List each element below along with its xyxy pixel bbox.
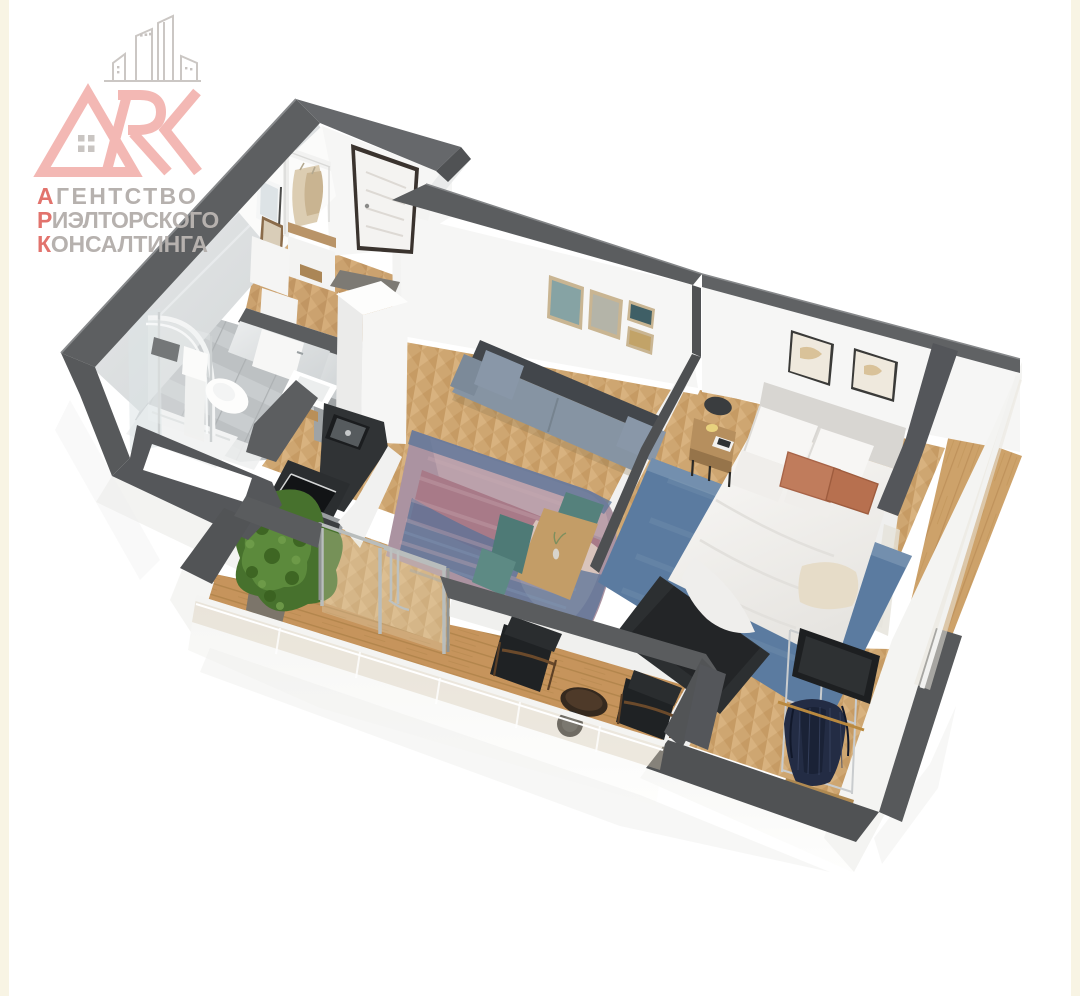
svg-text:АГЕНТСТВО: АГЕНТСТВО [37,183,198,209]
svg-text:РИЭЛТОРСКОГО: РИЭЛТОРСКОГО [37,207,219,233]
svg-text:КОНСАЛТИНГА: КОНСАЛТИНГА [37,231,208,257]
